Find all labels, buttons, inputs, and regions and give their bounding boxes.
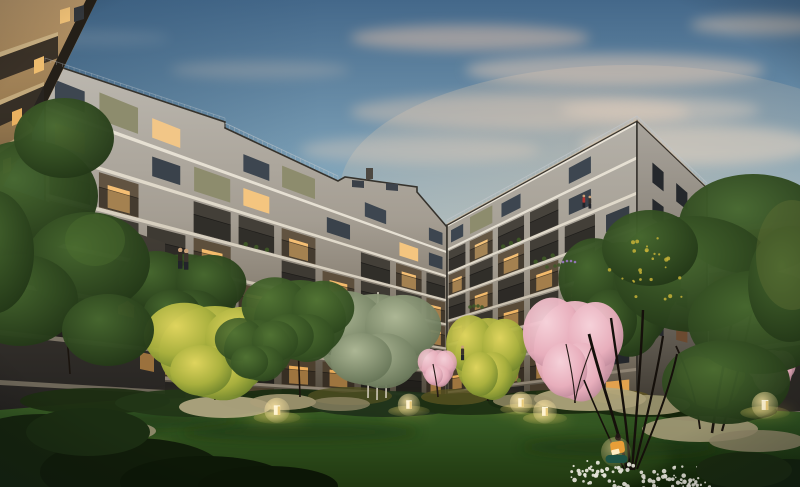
courtyard-dusk-rendering [0,0,800,487]
vignette-overlay [0,0,800,487]
rendering-canvas [0,0,800,487]
